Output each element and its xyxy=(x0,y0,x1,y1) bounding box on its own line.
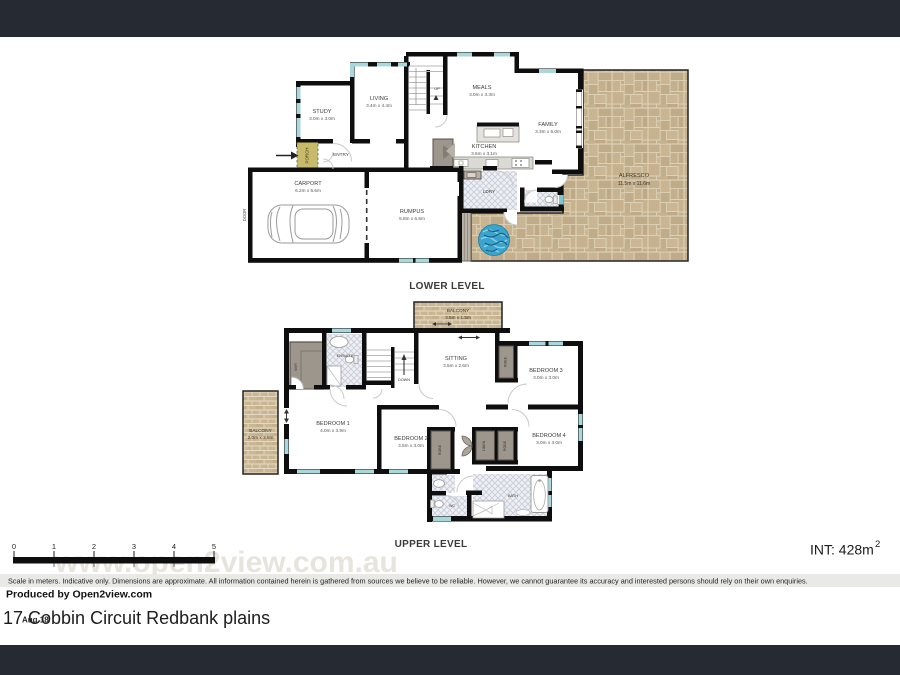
svg-text:DOWN: DOWN xyxy=(398,378,410,382)
svg-text:PORCH: PORCH xyxy=(305,148,310,164)
svg-text:UPPER LEVEL: UPPER LEVEL xyxy=(395,539,468,550)
svg-text:BATH: BATH xyxy=(508,493,518,498)
svg-text:2: 2 xyxy=(875,539,880,550)
svg-text:2: 2 xyxy=(92,542,96,551)
svg-text:MEALS: MEALS xyxy=(473,85,492,91)
svg-text:BEDROOM 1: BEDROOM 1 xyxy=(316,421,350,427)
svg-text:STUDY: STUDY xyxy=(313,109,332,115)
svg-text:1: 1 xyxy=(52,542,56,551)
svg-text:5: 5 xyxy=(212,542,216,551)
svg-text:4: 4 xyxy=(172,542,176,551)
svg-text:RUMPUS: RUMPUS xyxy=(400,209,425,215)
svg-text:BEDROOM 3: BEDROOM 3 xyxy=(529,368,563,374)
svg-text:BALCONY: BALCONY xyxy=(447,308,470,313)
svg-text:3.0m x 3.0m: 3.0m x 3.0m xyxy=(309,116,335,121)
svg-text:11.5m x 11.6m: 11.5m x 11.6m xyxy=(618,181,650,187)
svg-text:ROBE: ROBE xyxy=(438,444,442,455)
svg-text:UP: UP xyxy=(434,86,440,91)
svg-text:ENTRY: ENTRY xyxy=(333,152,350,157)
svg-text:DOOR: DOOR xyxy=(242,209,247,222)
svg-text:3: 3 xyxy=(132,542,136,551)
svg-text:SITTING: SITTING xyxy=(445,356,467,362)
svg-text:3.5m x 3.0m: 3.5m x 3.0m xyxy=(398,443,424,448)
svg-text:WIR: WIR xyxy=(293,363,298,371)
svg-text:WC: WC xyxy=(449,504,455,508)
svg-text:3.6m x 3.1m: 3.6m x 3.1m xyxy=(471,151,497,156)
svg-text:BALCONY: BALCONY xyxy=(249,428,272,433)
svg-text:KITCHEN: KITCHEN xyxy=(472,144,497,150)
svg-text:ENSUITE: ENSUITE xyxy=(337,353,354,358)
svg-text:3.3m x 6.0m: 3.3m x 6.0m xyxy=(535,129,561,134)
svg-text:6.2m x 5.6m: 6.2m x 5.6m xyxy=(295,188,321,193)
svg-text:LDRY: LDRY xyxy=(483,189,496,194)
svg-text:2.0m x 3.5m: 2.0m x 3.5m xyxy=(248,435,274,440)
svg-text:3.5m x 2.6m: 3.5m x 2.6m xyxy=(443,363,469,368)
svg-text:BEDROOM 2: BEDROOM 2 xyxy=(394,436,428,442)
svg-text:5.8m x 6.6m: 5.8m x 6.6m xyxy=(399,216,425,221)
svg-text:3.5m x 1.5m: 3.5m x 1.5m xyxy=(445,315,471,320)
svg-text:CARPORT: CARPORT xyxy=(294,181,322,187)
svg-text:LOWER LEVEL: LOWER LEVEL xyxy=(409,281,485,292)
svg-text:INT: 428m: INT: 428m xyxy=(810,542,874,558)
svg-text:3.0m x 3.3m: 3.0m x 3.3m xyxy=(469,92,495,97)
svg-text:ROBE: ROBE xyxy=(503,440,507,451)
svg-text:ALFRESCO: ALFRESCO xyxy=(619,173,650,179)
svg-text:LINEN: LINEN xyxy=(482,440,486,451)
svg-text:BEDROOM 4: BEDROOM 4 xyxy=(532,433,566,439)
svg-text:FAMILY: FAMILY xyxy=(538,122,558,128)
svg-text:3.0m x 3.0m: 3.0m x 3.0m xyxy=(536,440,562,445)
svg-text:Scale in meters. Indicative on: Scale in meters. Indicative only. Dimens… xyxy=(8,577,808,586)
svg-text:LIVING: LIVING xyxy=(370,96,388,102)
svg-text:3.4m x 4.4m: 3.4m x 4.4m xyxy=(366,103,392,108)
svg-text:0: 0 xyxy=(12,542,16,551)
svg-text:ROBE: ROBE xyxy=(504,356,508,367)
svg-text:4.0m x 3.9m: 4.0m x 3.9m xyxy=(320,428,346,433)
svg-text:3.0m x 3.0m: 3.0m x 3.0m xyxy=(533,375,559,380)
svg-text:Produced by Open2view.com: Produced by Open2view.com xyxy=(6,589,152,601)
svg-text:Aug 18: Aug 18 xyxy=(22,616,49,625)
